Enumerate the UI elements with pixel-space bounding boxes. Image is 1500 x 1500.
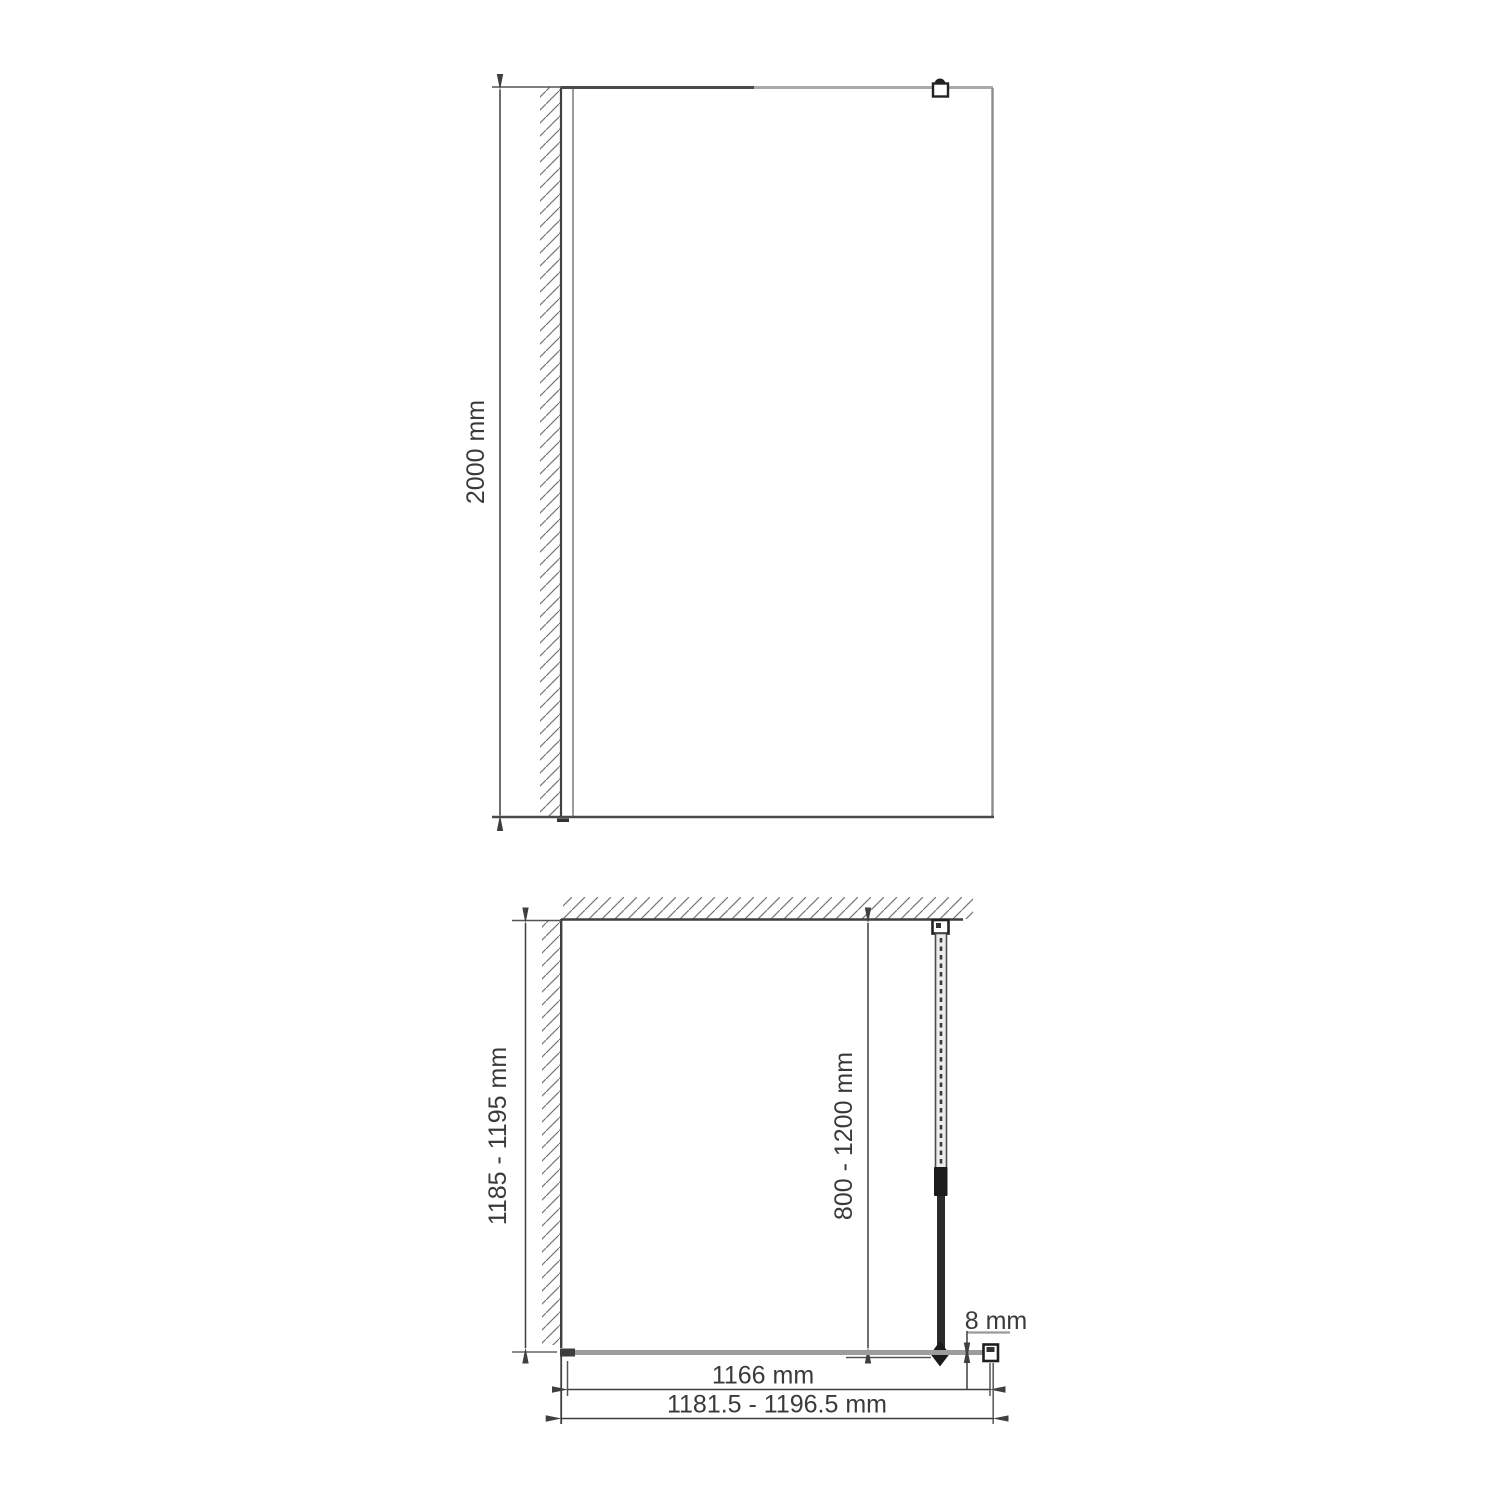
plan-overall-width-dim-label: 1181.5 - 1196.5 mm xyxy=(667,1391,887,1419)
front-wall-profile-foot xyxy=(557,819,569,823)
plan-wall-profile-cap xyxy=(560,1349,575,1357)
plan-back-wall-hatch xyxy=(563,897,973,919)
front-wall-hatch xyxy=(540,87,561,818)
plan-end-profile xyxy=(984,1345,999,1362)
front-height-dim-label: 2000 mm xyxy=(462,400,490,504)
support-bar xyxy=(931,920,950,1367)
support-bar-bracket-detail xyxy=(936,923,941,928)
plan-depth-dim-label: 1185 - 1195 mm xyxy=(484,1047,512,1225)
plan-thickness-dim-label: 8 mm xyxy=(965,1307,1028,1335)
plan-view: 1185 - 1195 mm 800 - 1200 mm 8 mm xyxy=(484,897,1027,1424)
plan-side-wall-hatch xyxy=(542,921,561,1345)
support-bar-clamp-collar xyxy=(934,1167,948,1196)
wall-mount-bracket-icon xyxy=(933,79,948,97)
front-elevation-view: 2000 mm xyxy=(462,79,994,823)
shower-panel-technical-drawing: 2000 mm 1185 - 1195 mm 800 - 1200 mm xyxy=(0,0,1500,1500)
plan-glass-width-dim-label: 1166 mm xyxy=(712,1362,814,1390)
support-bar-inner-rod xyxy=(937,1196,945,1348)
plan-bar-dim-label: 800 - 1200 mm xyxy=(830,1052,858,1220)
